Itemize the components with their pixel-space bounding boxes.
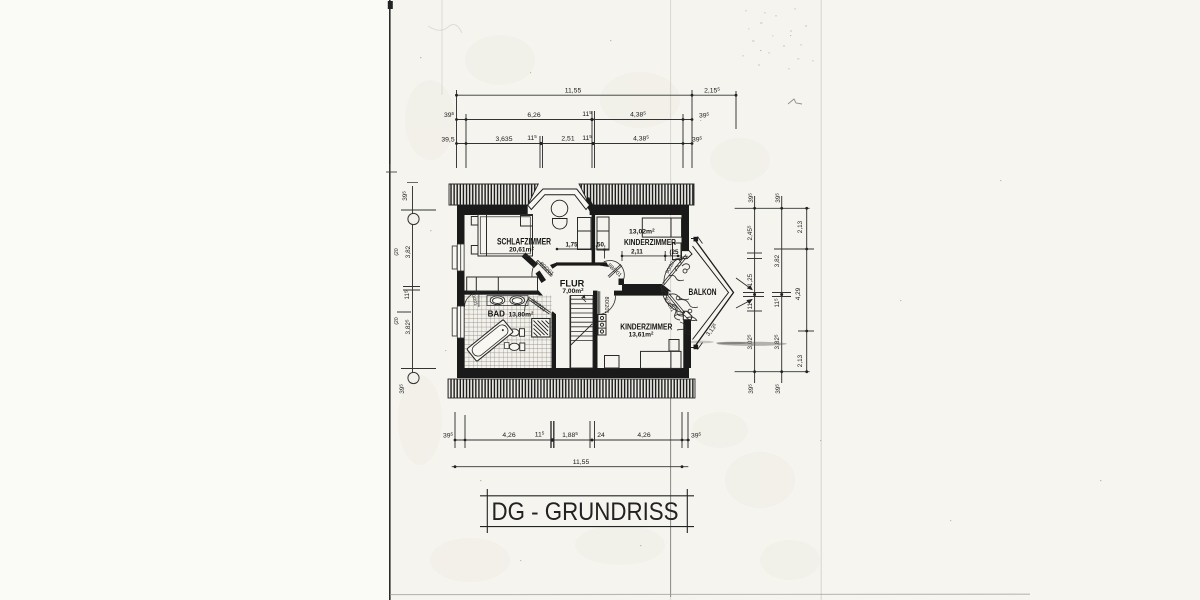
svg-text:2,13: 2,13 [797,354,804,367]
svg-text:2,11: 2,11 [631,248,643,255]
svg-text:1,75: 1,75 [565,242,578,249]
svg-text:13,02m2: 13,02m2 [629,228,655,236]
svg-text:(25: (25 [670,249,680,256]
svg-text:(20: (20 [394,317,400,324]
svg-text:6,26: 6,26 [527,112,540,119]
svg-text:7,00m2: 7,00m2 [562,287,584,295]
svg-text:80/201: 80/201 [603,296,609,313]
svg-text:3,82: 3,82 [405,245,412,258]
svg-text:KINDERZIMMER: KINDERZIMMER [624,238,676,247]
svg-text:13,80m2: 13,80m2 [509,311,534,319]
svg-text:KINDERZIMMER: KINDERZIMMER [620,323,672,332]
svg-text:3,82: 3,82 [774,254,781,267]
svg-text:SCHLAFZIMMER: SCHLAFZIMMER [497,237,551,247]
svg-text:20,61m2: 20,61m2 [509,246,534,254]
svg-text:11,55: 11,55 [573,459,590,466]
svg-text:11,55: 11,55 [565,88,582,95]
svg-text:1,25: 1,25 [747,273,754,286]
svg-text:2,13: 2,13 [797,220,804,233]
svg-text:BALKON: BALKON [689,287,717,297]
svg-text:(20: (20 [394,248,400,255]
svg-text:3,635: 3,635 [495,136,512,143]
svg-text:4,26: 4,26 [502,432,515,439]
svg-text:2,51: 2,51 [561,136,574,143]
svg-text:13,61m2: 13,61m2 [629,331,654,339]
svg-text:DG - GRUNDRISS: DG - GRUNDRISS [492,498,679,526]
svg-text:,50,: ,50, [595,242,606,249]
svg-text:4,29: 4,29 [795,287,802,300]
svg-text:39,5: 39,5 [441,137,454,144]
svg-text:24: 24 [597,432,605,439]
svg-text:4,26: 4,26 [637,432,650,439]
svg-text:BAD: BAD [488,310,506,319]
